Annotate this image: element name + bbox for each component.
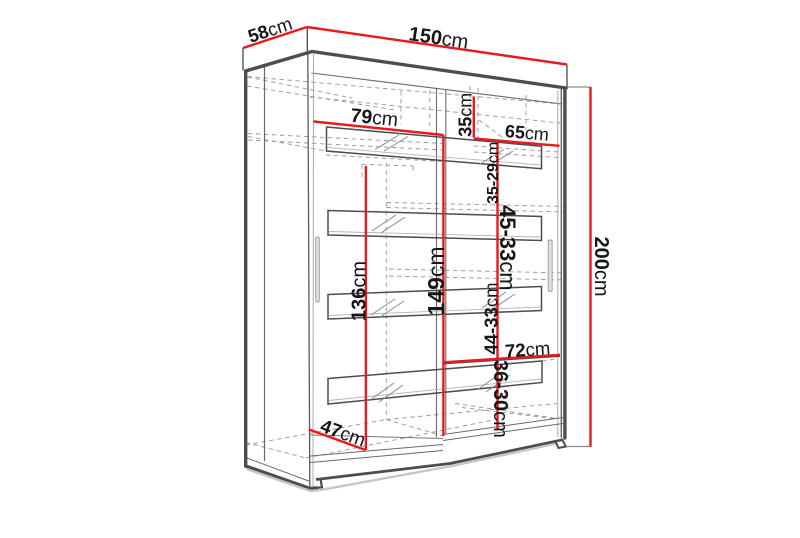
svg-text:36-30cm: 36-30cm <box>489 360 511 438</box>
svg-text:200cm: 200cm <box>590 237 612 297</box>
svg-text:65cm: 65cm <box>504 121 550 145</box>
svg-text:136cm: 136cm <box>348 261 370 321</box>
svg-text:35cm: 35cm <box>456 93 476 137</box>
svg-text:35-29cm: 35-29cm <box>485 142 502 204</box>
svg-text:44-33cm: 44-33cm <box>481 283 502 355</box>
svg-text:72cm: 72cm <box>504 337 551 361</box>
svg-text:45-33cm: 45-33cm <box>495 205 520 291</box>
svg-text:149cm: 149cm <box>423 246 449 315</box>
